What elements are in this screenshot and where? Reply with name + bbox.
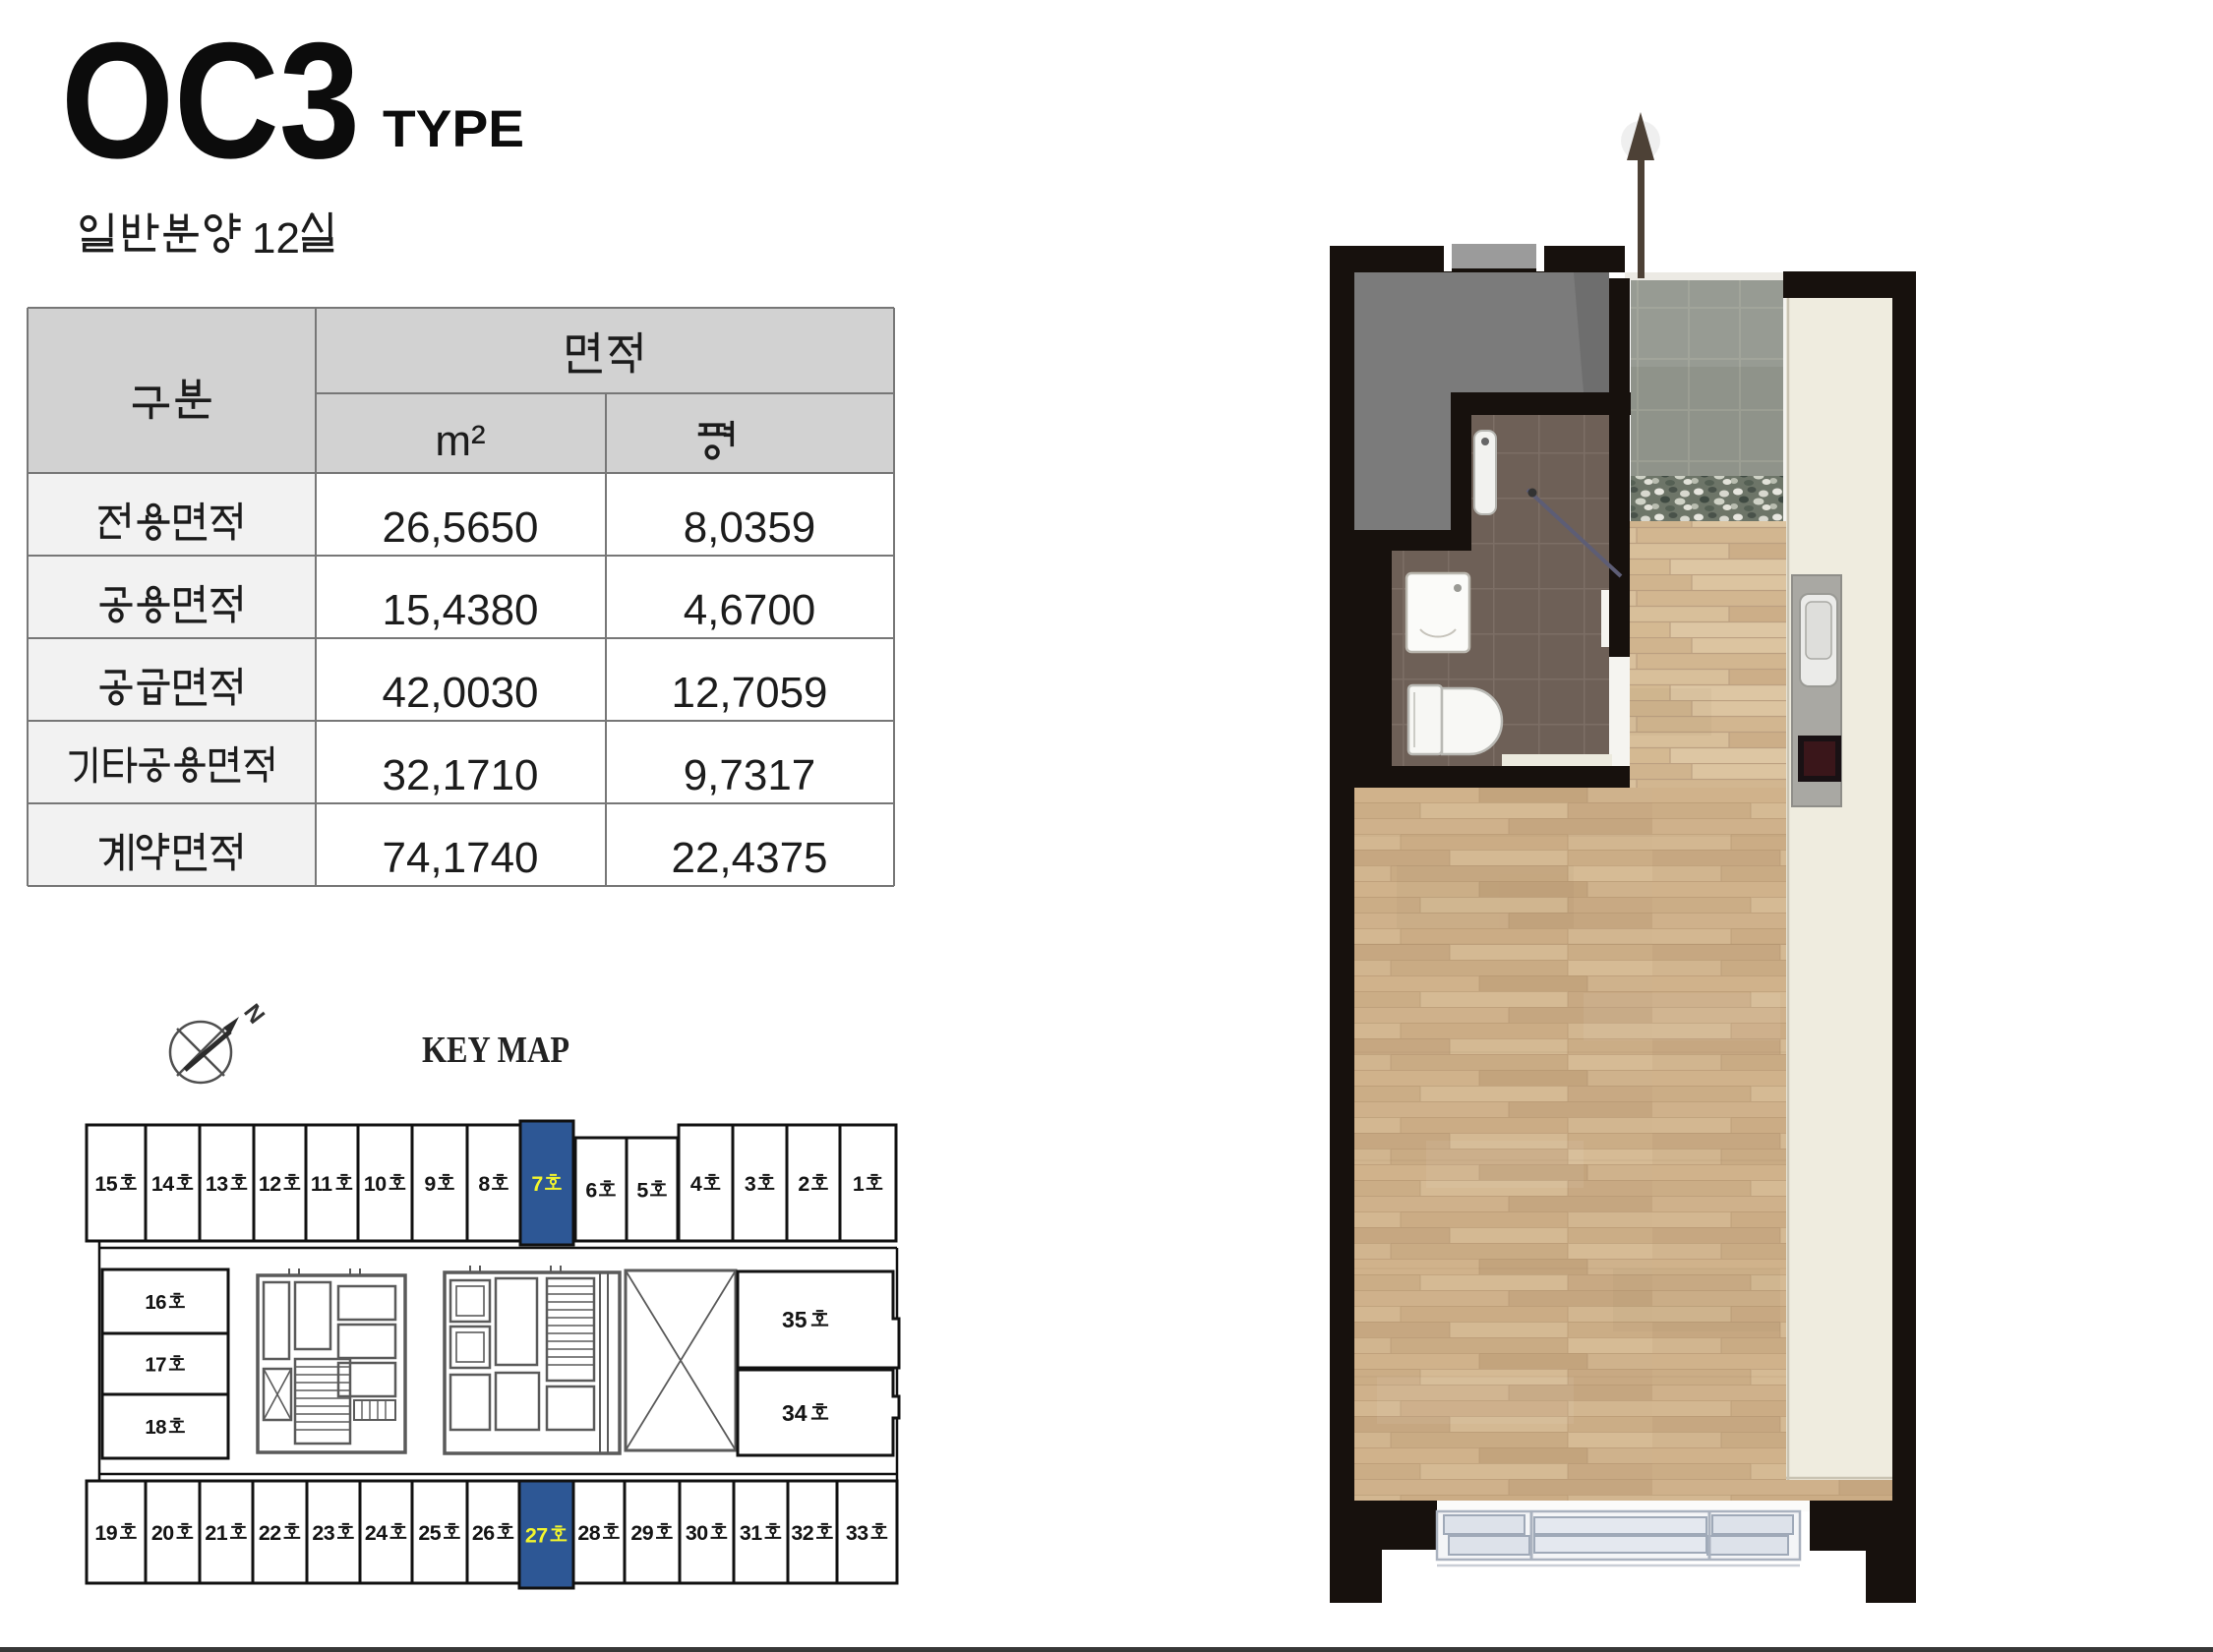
svg-text:TYPE: TYPE	[383, 100, 524, 158]
svg-text:4,6700: 4,6700	[684, 586, 816, 634]
svg-text:7: 7	[531, 1172, 542, 1196]
svg-text:KEY MAP: KEY MAP	[422, 1030, 569, 1071]
svg-text:16: 16	[145, 1291, 166, 1314]
svg-text:26,5650: 26,5650	[382, 503, 538, 552]
svg-text:N: N	[238, 999, 269, 1029]
svg-text:32: 32	[791, 1521, 813, 1545]
svg-text:42,0030: 42,0030	[382, 669, 538, 717]
svg-text:23: 23	[312, 1521, 334, 1545]
svg-text:11: 11	[311, 1172, 332, 1196]
svg-text:9,7317: 9,7317	[684, 751, 816, 799]
svg-text:6: 6	[585, 1178, 597, 1202]
svg-text:31: 31	[740, 1521, 762, 1545]
svg-text:35: 35	[782, 1307, 807, 1332]
svg-text:8,0359: 8,0359	[684, 503, 816, 552]
svg-text:27: 27	[525, 1523, 548, 1547]
svg-text:24: 24	[365, 1521, 388, 1545]
svg-text:15,4380: 15,4380	[382, 586, 538, 634]
svg-text:2: 2	[798, 1172, 809, 1196]
svg-text:20: 20	[151, 1521, 174, 1545]
svg-text:1: 1	[853, 1172, 865, 1196]
svg-text:14: 14	[151, 1172, 174, 1196]
svg-text:74,1740: 74,1740	[382, 834, 538, 882]
svg-text:5: 5	[636, 1178, 648, 1202]
svg-text:13: 13	[206, 1172, 228, 1196]
svg-text:m²: m²	[435, 417, 485, 465]
svg-text:9: 9	[424, 1172, 436, 1196]
svg-text:12,7059: 12,7059	[671, 669, 827, 717]
svg-text:19: 19	[94, 1521, 117, 1545]
svg-text:34: 34	[782, 1400, 807, 1426]
svg-text:10: 10	[364, 1172, 387, 1196]
svg-text:18: 18	[145, 1416, 166, 1439]
svg-text:28: 28	[577, 1521, 600, 1545]
svg-text:15: 15	[94, 1172, 117, 1196]
svg-text:3: 3	[745, 1172, 756, 1196]
svg-text:17: 17	[145, 1354, 166, 1377]
svg-text:26: 26	[472, 1521, 495, 1545]
svg-text:8: 8	[478, 1172, 490, 1196]
svg-text:30: 30	[686, 1521, 708, 1545]
svg-text:32,1710: 32,1710	[382, 751, 538, 799]
svg-text:25: 25	[418, 1521, 441, 1545]
svg-text:22: 22	[259, 1521, 281, 1545]
svg-text:12: 12	[252, 214, 300, 263]
svg-text:4: 4	[690, 1172, 702, 1196]
svg-text:21: 21	[205, 1521, 227, 1545]
svg-text:33: 33	[846, 1521, 868, 1545]
svg-text:29: 29	[630, 1521, 653, 1545]
svg-text:22,4375: 22,4375	[671, 834, 827, 882]
svg-text:12: 12	[259, 1172, 281, 1196]
svg-text:OC3: OC3	[61, 8, 360, 193]
